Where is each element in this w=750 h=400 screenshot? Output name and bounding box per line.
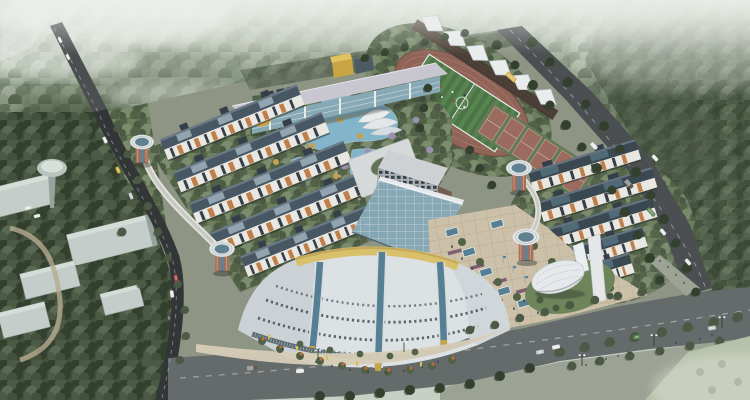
atmosphere-overlay bbox=[0, 0, 750, 400]
rendering-canvas: Aerial architectural rendering of a scho… bbox=[0, 0, 750, 400]
campus-rendering: Aerial architectural rendering of a scho… bbox=[0, 0, 750, 400]
